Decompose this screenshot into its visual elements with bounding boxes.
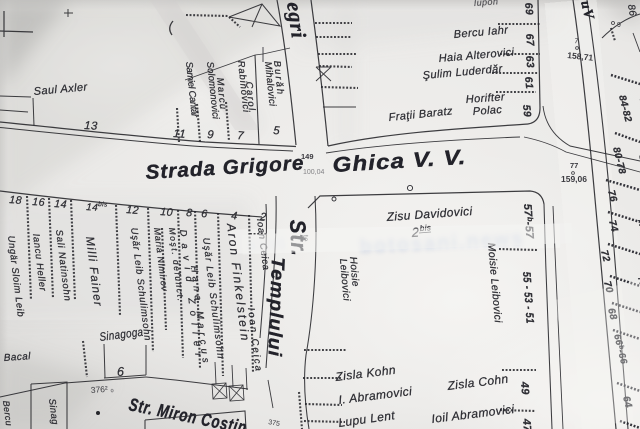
svg-text:egri: egri — [282, 0, 311, 40]
svg-text:18: 18 — [9, 194, 23, 207]
svg-text:67: 67 — [523, 33, 536, 47]
svg-text:8: 8 — [186, 207, 193, 219]
svg-text:59: 59 — [520, 104, 533, 118]
svg-text:16: 16 — [32, 196, 46, 209]
svg-text:4: 4 — [231, 210, 238, 222]
svg-text:47: 47 — [520, 417, 533, 429]
svg-text:7: 7 — [237, 130, 245, 142]
svg-text:6: 6 — [117, 365, 124, 379]
svg-text:Bacal: Bacal — [3, 351, 31, 364]
svg-text:376² ₀: 376² ₀ — [90, 383, 114, 395]
svg-text:9: 9 — [207, 129, 215, 141]
svg-text:49: 49 — [518, 380, 531, 395]
svg-text:63: 63 — [523, 55, 536, 69]
svg-text:69: 69 — [522, 2, 535, 16]
svg-text:9: 9 — [617, 22, 621, 29]
svg-text:Polac: Polac — [472, 104, 502, 118]
svg-text:12: 12 — [126, 204, 140, 217]
svg-text:5: 5 — [273, 125, 281, 137]
svg-text:61: 61 — [522, 76, 535, 90]
svg-text:77: 77 — [570, 161, 578, 170]
svg-text:149: 149 — [301, 152, 314, 161]
svg-text:6: 6 — [201, 208, 208, 220]
svg-text:14: 14 — [54, 198, 68, 211]
svg-text:14: 14 — [86, 202, 99, 214]
svg-text:bis: bis — [98, 201, 108, 209]
svg-text:10: 10 — [160, 206, 174, 219]
svg-text:Templului: Templului — [265, 257, 289, 358]
svg-text:11: 11 — [173, 128, 187, 141]
svg-text:13: 13 — [84, 120, 98, 133]
svg-text:159,06: 159,06 — [561, 174, 587, 184]
svg-text:100,04: 100,04 — [303, 169, 325, 176]
